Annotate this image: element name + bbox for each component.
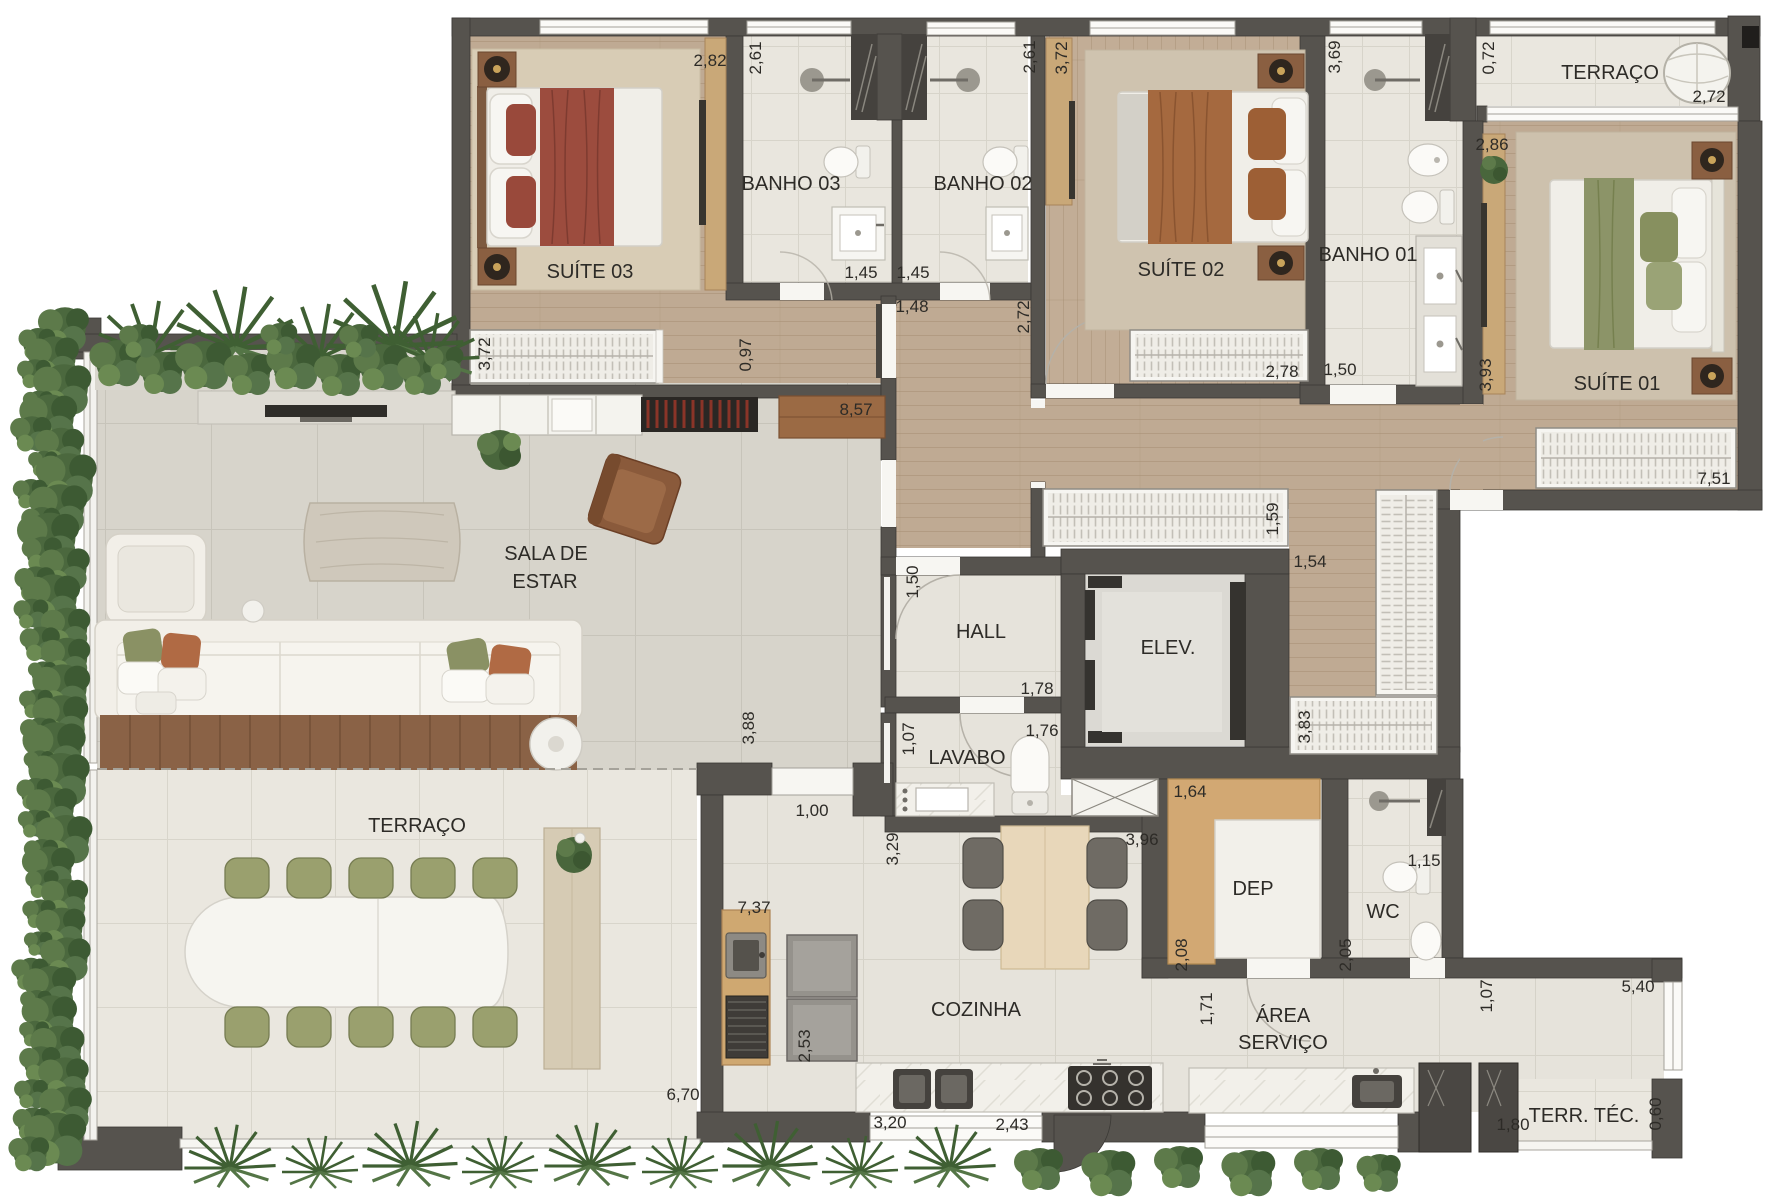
svg-text:TERRAÇO: TERRAÇO: [1561, 62, 1659, 84]
svg-text:1,80: 1,80: [1496, 1115, 1529, 1134]
svg-text:5,40: 5,40: [1621, 977, 1654, 996]
svg-text:3,96: 3,96: [1125, 830, 1158, 849]
svg-text:3,20: 3,20: [873, 1113, 906, 1132]
svg-text:6,70: 6,70: [666, 1085, 699, 1104]
svg-text:SERVIÇO: SERVIÇO: [1238, 1032, 1328, 1054]
svg-text:HALL: HALL: [956, 621, 1006, 643]
svg-text:8,57: 8,57: [839, 400, 872, 419]
svg-text:BANHO 02: BANHO 02: [934, 173, 1033, 195]
svg-text:0,60: 0,60: [1646, 1097, 1665, 1130]
svg-text:1,50: 1,50: [1323, 360, 1356, 379]
svg-text:1,45: 1,45: [896, 263, 929, 282]
svg-text:0,97: 0,97: [736, 338, 755, 371]
svg-text:WC: WC: [1366, 901, 1399, 923]
svg-text:1,59: 1,59: [1263, 502, 1282, 535]
svg-text:SUÍTE 03: SUÍTE 03: [547, 260, 634, 283]
svg-text:2,43: 2,43: [995, 1115, 1028, 1134]
svg-text:2,72: 2,72: [1014, 300, 1033, 333]
svg-text:3,29: 3,29: [883, 832, 902, 865]
svg-text:1,48: 1,48: [895, 297, 928, 316]
svg-text:1,54: 1,54: [1293, 552, 1326, 571]
svg-text:COZINHA: COZINHA: [931, 999, 1022, 1021]
svg-text:1,07: 1,07: [899, 722, 918, 755]
svg-text:1,07: 1,07: [1477, 979, 1496, 1012]
svg-text:2,72: 2,72: [1692, 87, 1725, 106]
svg-text:SUÍTE 01: SUÍTE 01: [1574, 372, 1661, 395]
svg-text:BANHO 03: BANHO 03: [742, 173, 841, 195]
svg-text:3,83: 3,83: [1295, 710, 1314, 743]
svg-text:7,51: 7,51: [1697, 469, 1730, 488]
svg-text:2,61: 2,61: [746, 41, 765, 74]
svg-text:7,37: 7,37: [737, 898, 770, 917]
svg-text:TERR. TÉC.: TERR. TÉC.: [1529, 1104, 1640, 1127]
svg-text:3,93: 3,93: [1476, 358, 1495, 391]
svg-text:1,00: 1,00: [795, 801, 828, 820]
svg-text:1,15: 1,15: [1407, 851, 1440, 870]
svg-text:3,88: 3,88: [739, 711, 758, 744]
svg-text:2,61: 2,61: [1020, 40, 1039, 73]
svg-text:1,71: 1,71: [1197, 992, 1216, 1025]
svg-text:3,69: 3,69: [1325, 40, 1344, 73]
svg-text:2,86: 2,86: [1475, 135, 1508, 154]
svg-text:2,08: 2,08: [1172, 938, 1191, 971]
svg-text:1,78: 1,78: [1020, 679, 1053, 698]
svg-text:ÁREA: ÁREA: [1256, 1004, 1311, 1027]
svg-text:0,72: 0,72: [1479, 41, 1498, 74]
svg-text:2,53: 2,53: [795, 1029, 814, 1062]
svg-text:ESTAR: ESTAR: [512, 571, 577, 593]
svg-text:1,64: 1,64: [1173, 782, 1206, 801]
svg-text:ELEV.: ELEV.: [1141, 637, 1196, 659]
svg-text:1,76: 1,76: [1025, 721, 1058, 740]
svg-text:3,72: 3,72: [1052, 41, 1071, 74]
svg-text:BANHO 01: BANHO 01: [1319, 244, 1418, 266]
svg-text:DEP: DEP: [1232, 878, 1273, 900]
svg-text:SUÍTE 02: SUÍTE 02: [1138, 258, 1225, 281]
svg-text:1,50: 1,50: [903, 565, 922, 598]
svg-text:2,05: 2,05: [1336, 938, 1355, 971]
svg-text:LAVABO: LAVABO: [928, 747, 1005, 769]
svg-text:2,82: 2,82: [693, 51, 726, 70]
svg-text:3,72: 3,72: [475, 337, 494, 370]
svg-text:SALA DE: SALA DE: [504, 543, 587, 565]
svg-text:1,45: 1,45: [844, 263, 877, 282]
svg-text:TERRAÇO: TERRAÇO: [368, 815, 466, 837]
svg-text:2,78: 2,78: [1265, 362, 1298, 381]
